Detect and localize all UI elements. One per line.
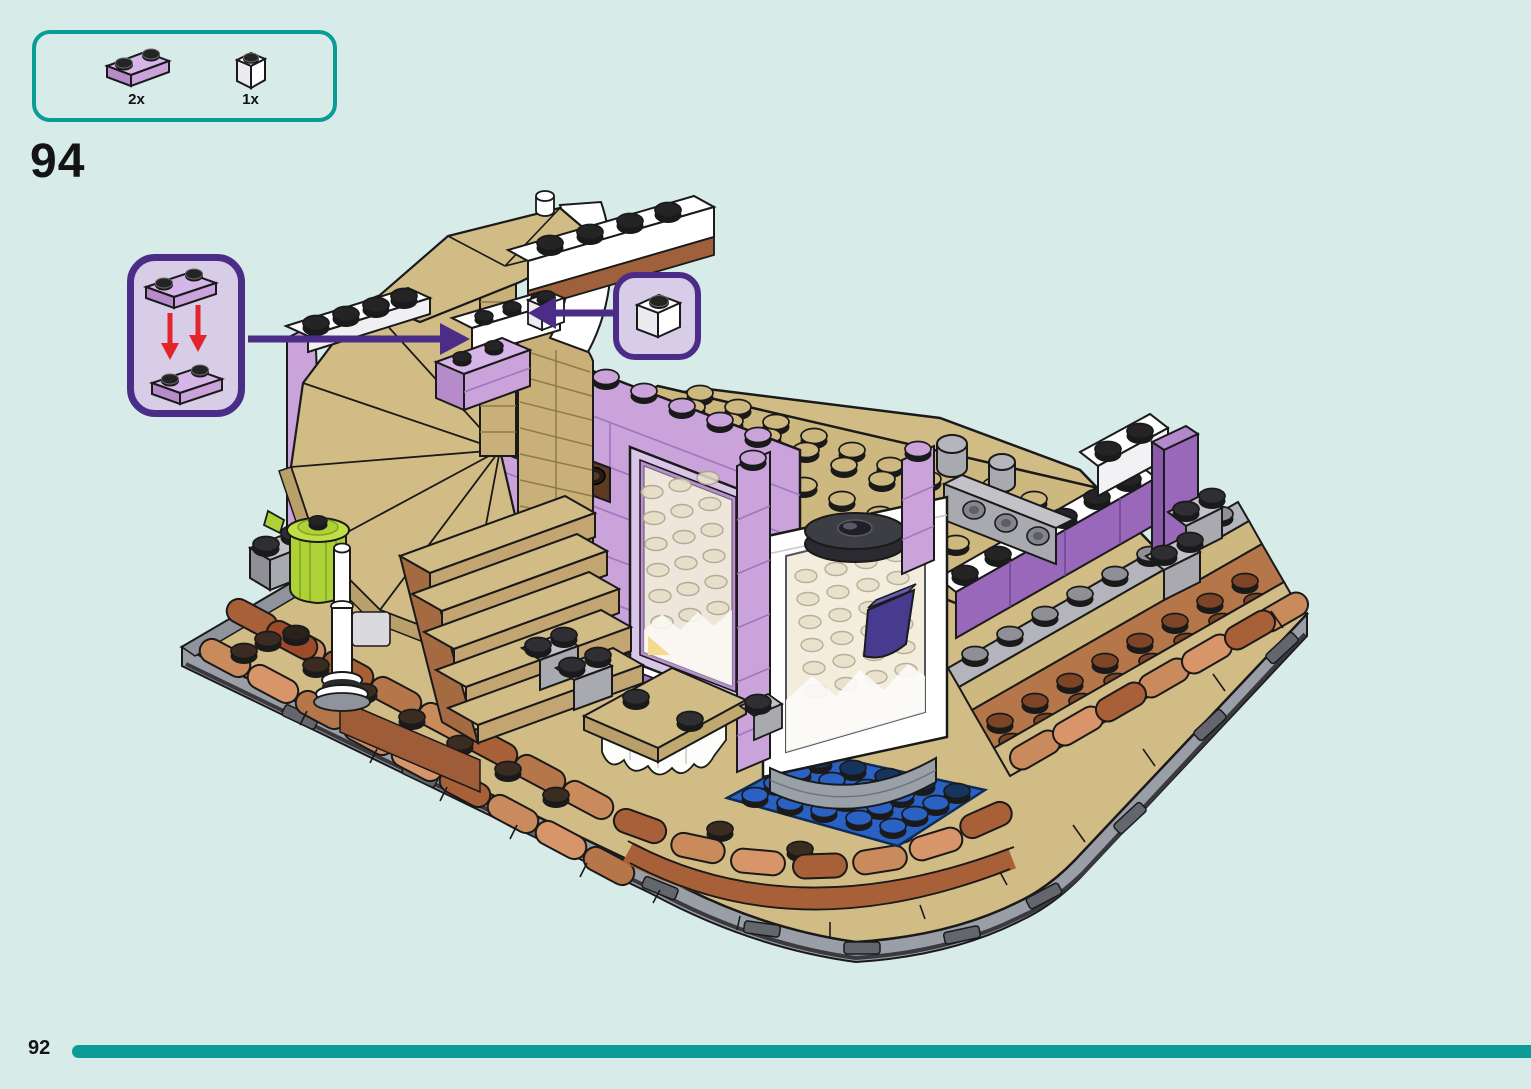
instruction-page: { "page": { "background_color": "#d7ebe9… <box>0 0 1531 1089</box>
parts-callout-panel: 2x 1x <box>32 30 337 122</box>
upper-plate <box>146 269 216 308</box>
window <box>630 447 746 706</box>
step-number: 94 <box>30 134 85 189</box>
model-illustration <box>0 0 1531 1089</box>
part-item-plate-1x2: 2x <box>99 44 175 108</box>
door-right-column <box>902 442 934 575</box>
tiny-white-cylinder <box>536 191 554 216</box>
page-number: 92 <box>28 1037 50 1060</box>
part-count-label: 1x <box>242 91 259 108</box>
progress-bar <box>72 1045 1531 1058</box>
callout-stack-plates <box>127 254 245 417</box>
press-arrows-icon <box>161 305 207 360</box>
stack-two-1x2-lavender-plates-icon <box>134 261 238 410</box>
plate-1x2-lavender-icon <box>99 44 175 90</box>
turntable <box>805 513 905 562</box>
part-item-brick-1x1: 1x <box>231 44 271 108</box>
brick-1x1-white-icon <box>231 44 271 90</box>
part-count-label: 2x <box>128 91 145 108</box>
lower-plate <box>152 365 222 404</box>
brick-1x1-white-icon <box>619 278 695 354</box>
callout-place-brick <box>613 272 701 360</box>
